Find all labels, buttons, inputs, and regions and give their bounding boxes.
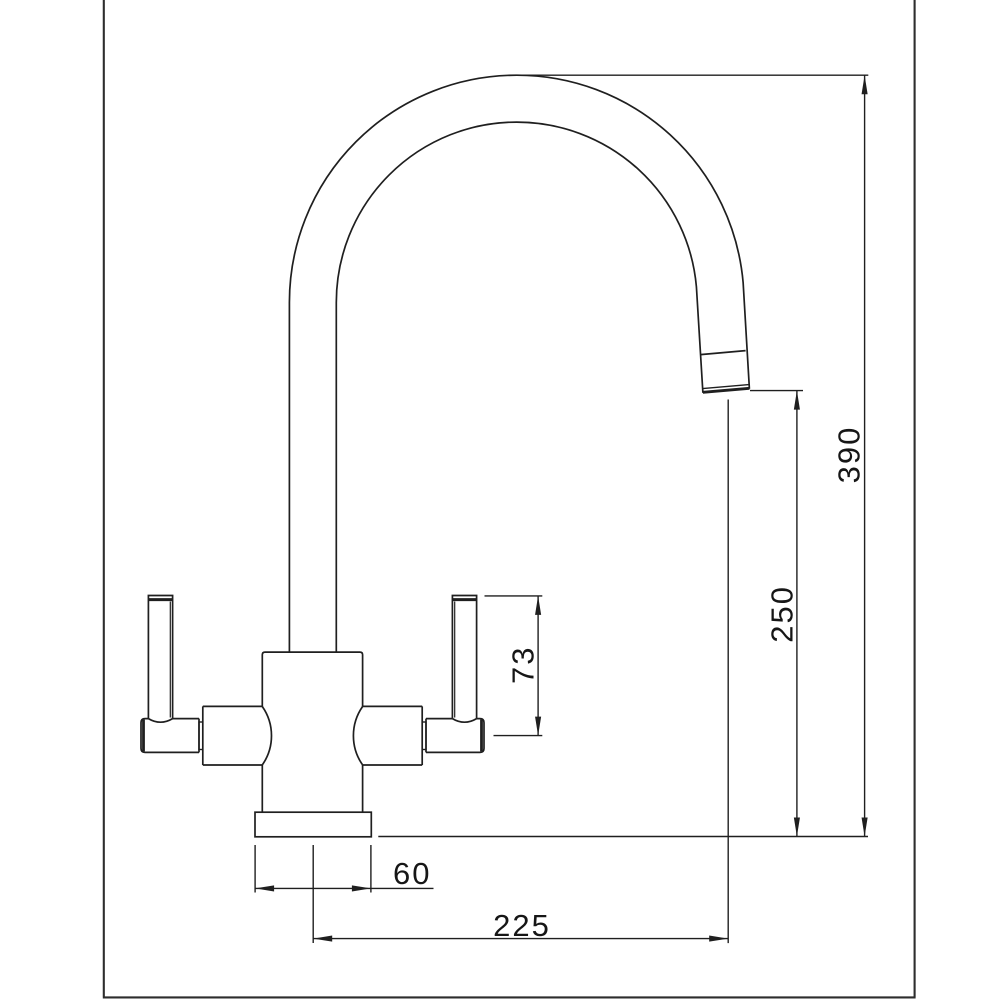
svg-text:73: 73 [506,646,541,684]
svg-text:225: 225 [493,908,551,943]
svg-text:390: 390 [832,426,867,484]
svg-text:250: 250 [765,585,800,643]
svg-text:60: 60 [393,856,431,891]
